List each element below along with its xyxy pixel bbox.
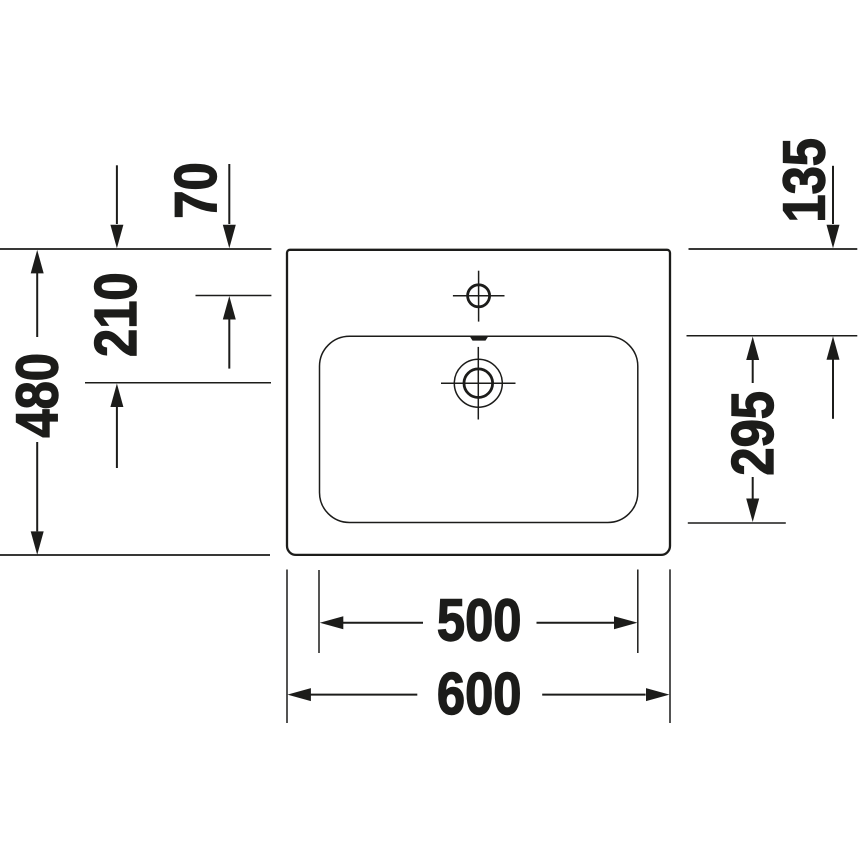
svg-text:70: 70 — [162, 162, 228, 218]
svg-text:480: 480 — [4, 353, 70, 438]
svg-text:600: 600 — [437, 660, 522, 726]
svg-text:135: 135 — [771, 138, 837, 223]
svg-text:295: 295 — [719, 391, 785, 476]
svg-text:500: 500 — [437, 587, 522, 653]
svg-text:210: 210 — [82, 272, 148, 357]
